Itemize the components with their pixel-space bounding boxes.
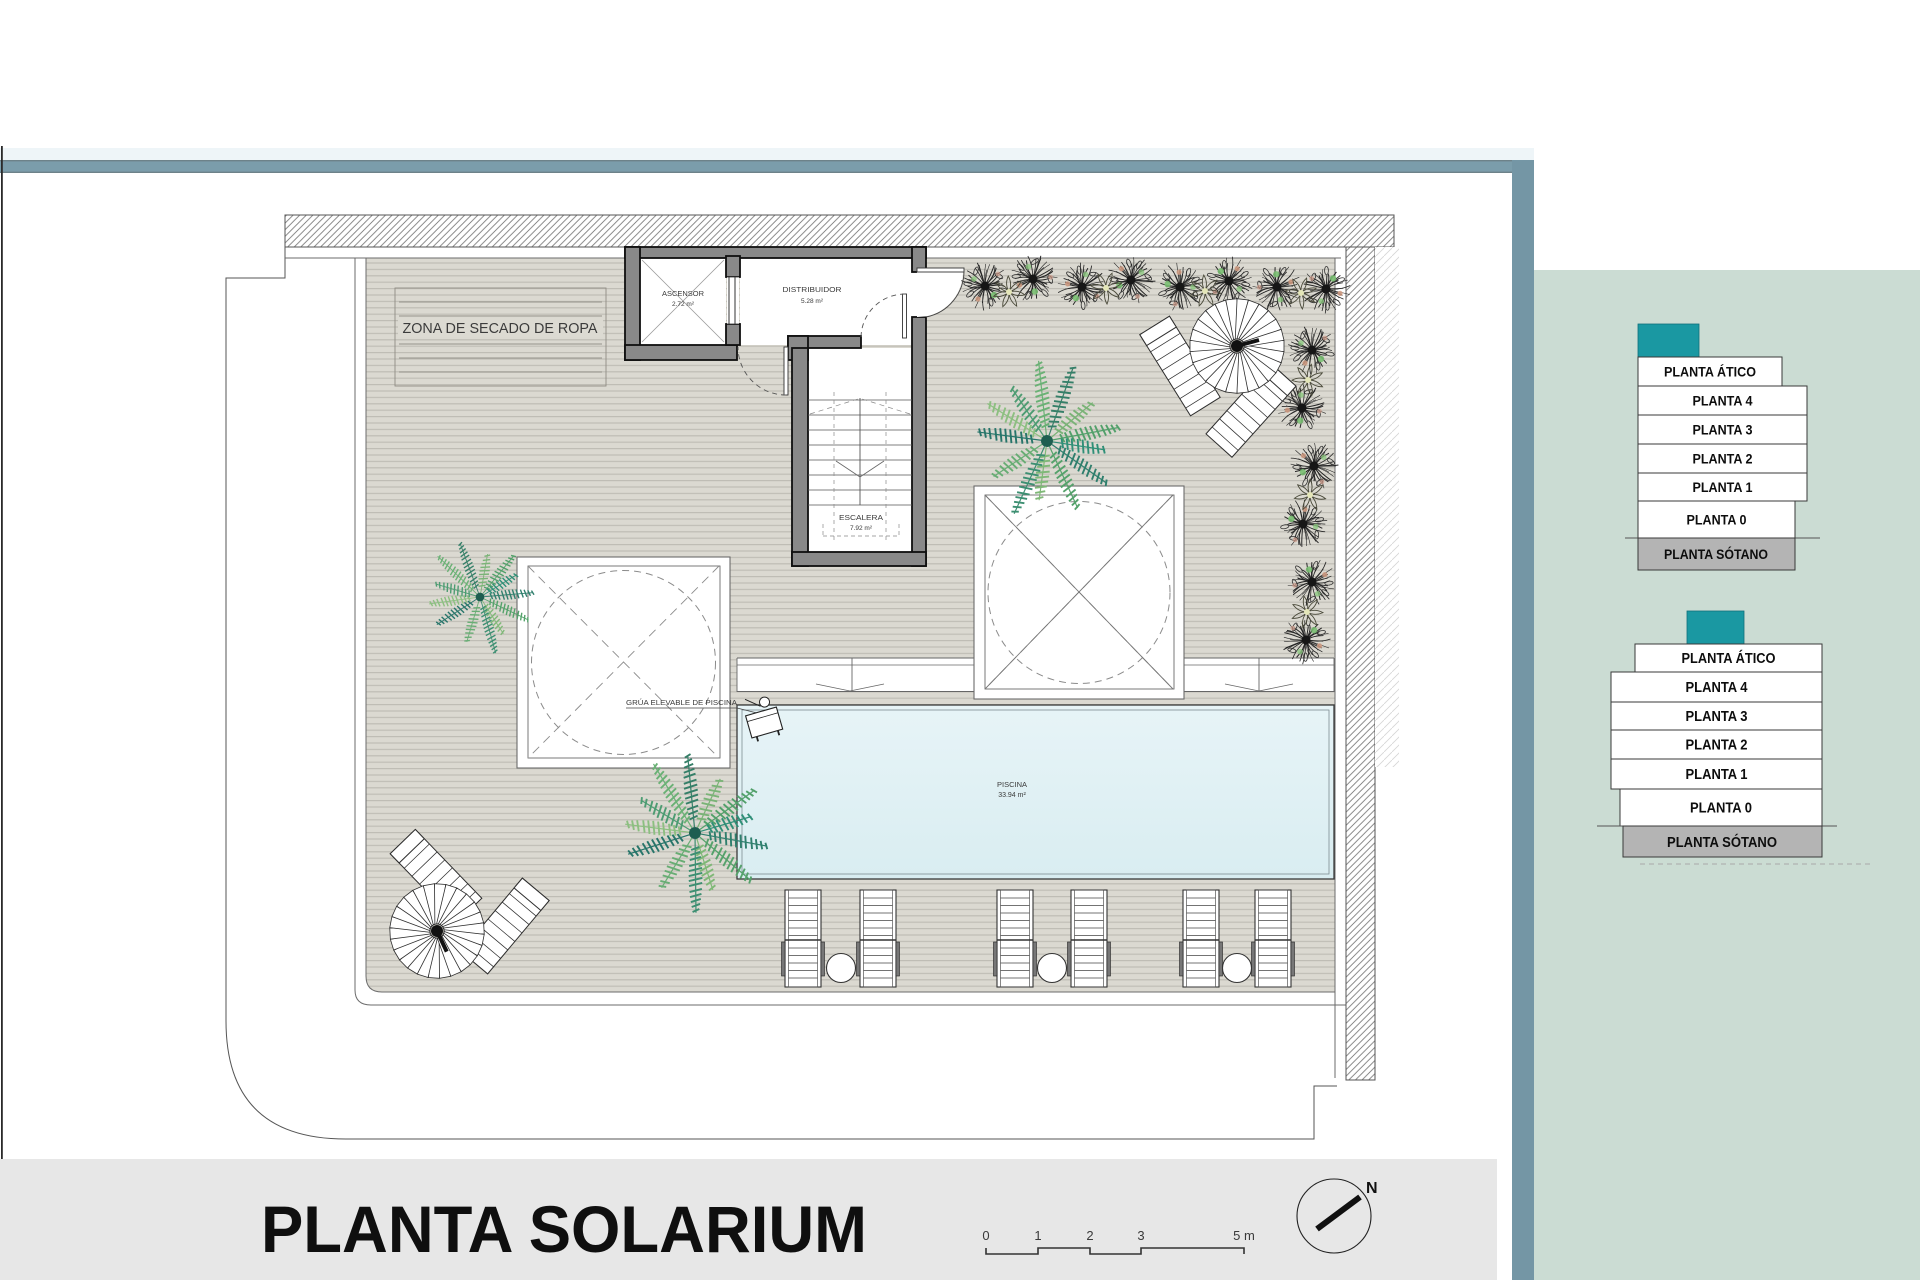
- svg-text:DISTRIBUIDOR: DISTRIBUIDOR: [783, 287, 842, 294]
- svg-text:ESCALERA: ESCALERA: [839, 515, 883, 522]
- svg-text:PISCINA: PISCINA: [997, 780, 1027, 789]
- svg-text:2: 2: [1086, 1228, 1093, 1243]
- svg-text:5.28 m²: 5.28 m²: [801, 298, 824, 305]
- svg-text:GRÚA ELEVABLE DE PISCINA: GRÚA ELEVABLE DE PISCINA: [626, 698, 737, 707]
- svg-text:PLANTA 2: PLANTA 2: [1686, 738, 1748, 754]
- svg-text:PLANTA 3: PLANTA 3: [1686, 709, 1748, 725]
- svg-text:PLANTA SÓTANO: PLANTA SÓTANO: [1667, 833, 1777, 851]
- svg-text:5 m: 5 m: [1233, 1228, 1255, 1243]
- svg-text:7.92 m²: 7.92 m²: [850, 525, 873, 532]
- svg-text:PLANTA 1: PLANTA 1: [1686, 767, 1748, 783]
- svg-text:3: 3: [1137, 1228, 1144, 1243]
- svg-text:1: 1: [1034, 1228, 1041, 1243]
- svg-text:N: N: [1366, 1180, 1378, 1197]
- svg-text:ZONA DE SECADO DE ROPA: ZONA DE SECADO DE ROPA: [403, 321, 598, 337]
- svg-text:PLANTA ÁTICO: PLANTA ÁTICO: [1682, 650, 1776, 667]
- svg-text:33.94 m²: 33.94 m²: [998, 792, 1026, 799]
- svg-text:PLANTA 2: PLANTA 2: [1693, 452, 1753, 467]
- svg-text:0: 0: [982, 1228, 989, 1243]
- svg-text:PLANTA ÁTICO: PLANTA ÁTICO: [1664, 365, 1756, 380]
- svg-text:PLANTA 0: PLANTA 0: [1690, 801, 1752, 817]
- svg-text:PLANTA 1: PLANTA 1: [1693, 480, 1753, 495]
- svg-text:PLANTA SOLARIUM: PLANTA SOLARIUM: [261, 1192, 867, 1266]
- svg-text:PLANTA 3: PLANTA 3: [1693, 423, 1753, 438]
- svg-text:PLANTA 4: PLANTA 4: [1686, 680, 1748, 696]
- svg-text:PLANTA 0: PLANTA 0: [1687, 513, 1747, 528]
- svg-text:PLANTA SÓTANO: PLANTA SÓTANO: [1664, 547, 1768, 562]
- svg-text:ASCENSOR: ASCENSOR: [662, 291, 704, 298]
- svg-text:PLANTA 4: PLANTA 4: [1693, 394, 1753, 409]
- svg-text:2.72 m²: 2.72 m²: [672, 301, 695, 308]
